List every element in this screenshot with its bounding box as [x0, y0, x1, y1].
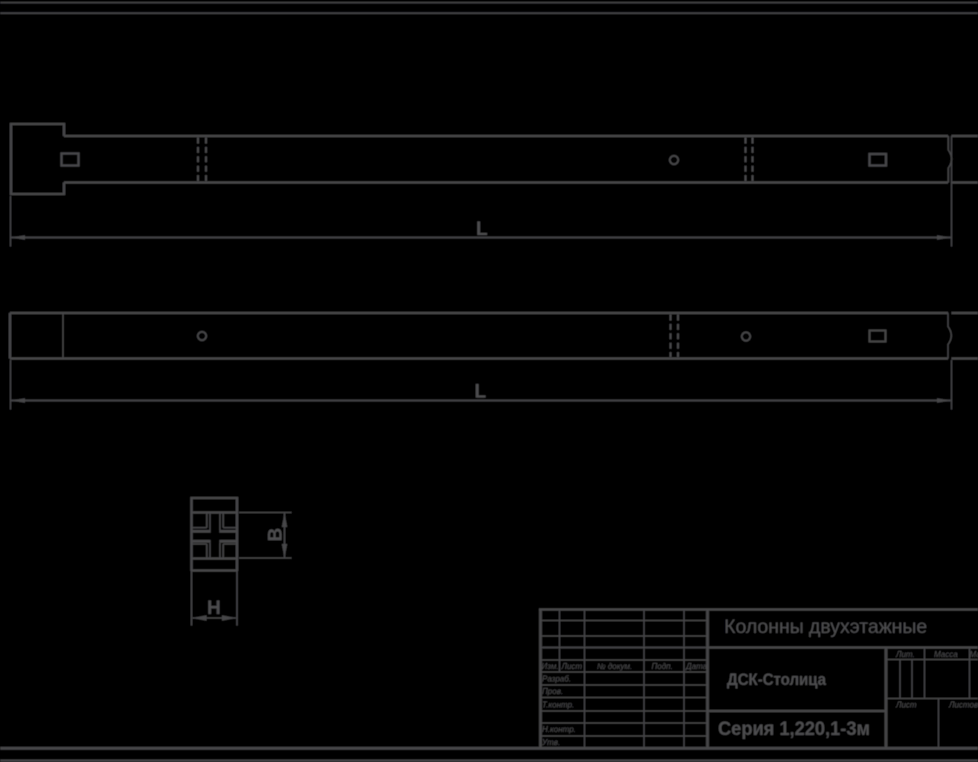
svg-text:№ докум.: № докум. — [597, 662, 632, 671]
svg-text:Утв.: Утв. — [541, 738, 560, 747]
svg-text:Масштаб: Масштаб — [970, 650, 978, 659]
svg-text:Серия 1,220,1-3м: Серия 1,220,1-3м — [718, 718, 870, 740]
svg-text:Лист: Лист — [561, 662, 583, 671]
svg-text:Дата: Дата — [685, 662, 708, 671]
svg-text:Подп.: Подп. — [652, 662, 673, 671]
svg-text:H: H — [207, 598, 221, 619]
svg-text:Колонны двухэтажные: Колонны двухэтажные — [724, 617, 927, 638]
svg-text:Разраб.: Разраб. — [542, 675, 571, 684]
svg-text:Лит.: Лит. — [895, 650, 915, 659]
svg-text:Масса: Масса — [934, 650, 958, 659]
svg-text:Лист: Лист — [895, 701, 917, 710]
svg-text:Пров.: Пров. — [542, 687, 563, 696]
svg-text:Н.контр.: Н.контр. — [542, 725, 576, 734]
svg-text:L: L — [475, 382, 487, 403]
svg-text:B: B — [266, 528, 287, 542]
svg-text:Изм.: Изм. — [542, 662, 559, 671]
svg-text:L: L — [476, 219, 488, 240]
svg-text:ДСК-Столица: ДСК-Столица — [727, 670, 826, 689]
svg-text:Листов: Листов — [948, 701, 978, 710]
svg-text:Т.контр.: Т.контр. — [542, 701, 574, 710]
